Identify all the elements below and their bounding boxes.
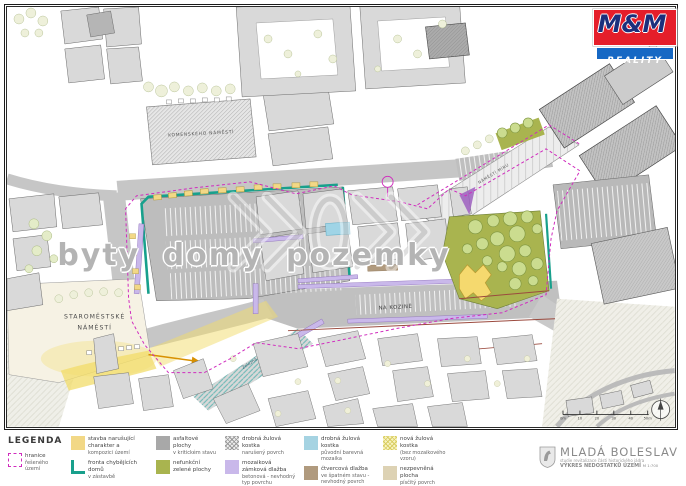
legend-swatch-gray [156,436,170,450]
brand-logo-mm-text: M&M [593,10,671,38]
legend-swatch-gray-hatch [225,436,239,450]
legend-swatch-yellow-hatch [383,436,397,450]
title-drawing-name: VÝKRES NEDOSTATKŮ ÚZEMÍ M 1:700 [560,463,678,470]
legend-item-nova-kostka: nová žulová kostka(bez mozaikového vzoru… [383,436,449,462]
legend-item-kostka-narusena: drobná žulová kostkanarušený povrch [225,436,297,456]
legend: LEGENDA hraniceřešeného území stavba nar… [8,436,458,482]
legend-swatch-cyan [304,436,318,450]
svg-text:20: 20 [595,417,600,421]
legend-item-stavba: stavba narušující charakter akompozici ú… [71,436,149,456]
legend-item-zelene: nefunkční zelené plochy [156,460,218,474]
label-staromestske-1: STAROMĚSTSKÉ [64,312,125,321]
legend-swatch-yellow [71,436,85,450]
title-scale: M 1:700 [643,463,658,468]
city-coat-of-arms-icon [539,446,556,468]
legend-title: LEGENDA [8,436,64,446]
brand-logo-blue-bar: REALITY [596,47,674,60]
legend-item-asfalt: asfaltové plochyv kritickém stavu [156,436,218,456]
title-block: MLADÁ BOLESLAV studie revitalizace části… [539,446,678,470]
legend-swatch-teal-line [71,460,85,474]
plan-sheet: KOMENSKÉHO NÁMĚSTÍ STAROMĚSTSKÉ NÁMĚSTÍ … [0,0,686,484]
legend-item-kostka-puvodni: drobná žulová kostkapůvodní barevná moza… [304,436,376,462]
legend-swatch-brown [304,466,318,480]
map-canvas: KOMENSKÉHO NÁMĚSTÍ STAROMĚSTSKÉ NÁMĚSTÍ … [7,7,675,427]
map-frame: KOMENSKÉHO NÁMĚSTÍ STAROMĚSTSKÉ NÁMĚSTÍ … [4,4,678,430]
svg-text:10: 10 [578,417,583,421]
svg-text:50m: 50m [644,417,653,421]
legend-swatch-dashed-outline [8,453,22,467]
svg-text:30: 30 [612,417,617,421]
legend-item-hranice: hraniceřešeného území [8,453,64,472]
svg-text:40: 40 [629,417,634,421]
legend-swatch-olive [156,460,170,474]
svg-text:0m: 0m [560,417,566,421]
label-staromestske-2: NÁMĚSTÍ [78,323,113,332]
legend-swatch-sand [383,466,397,480]
legend-swatch-purple [225,460,239,474]
legend-item-fronta: fronta chybějících domův zástavbě [71,460,149,480]
legend-item-nezpevnena: nezpevněná plochapísčitý povrch [383,466,449,486]
title-city: MLADÁ BOLESLAV [560,446,678,458]
brand-logo: M&M REALITY [593,9,677,61]
brand-logo-reality-text: REALITY [607,56,663,66]
legend-item-ctvercova: čtvercová dlažbave špatném stavu - nevho… [304,466,376,485]
legend-item-mozaikova: mozaiková zámková dlažbabetonová - nevho… [225,460,297,486]
